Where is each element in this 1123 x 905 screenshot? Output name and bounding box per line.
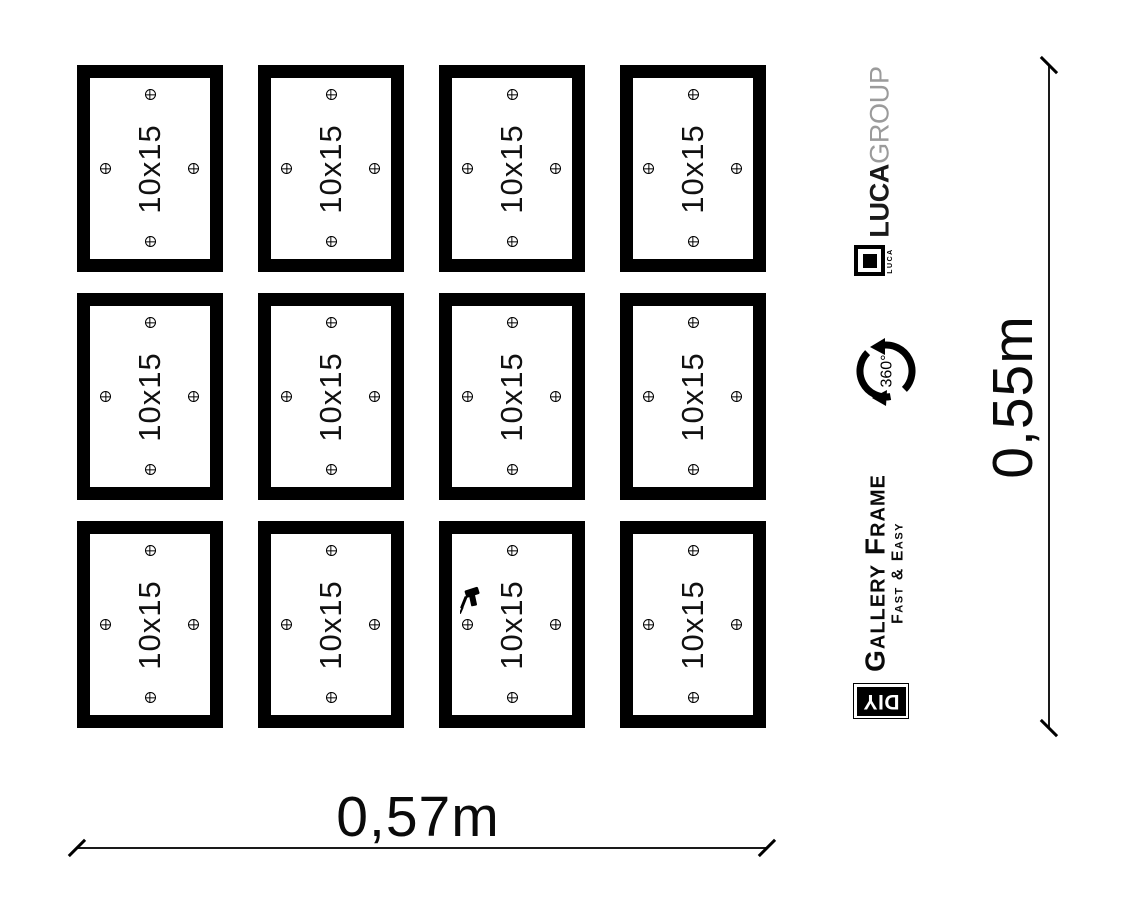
height-dimension-label: 0,55m <box>980 315 1046 478</box>
crosshair-middle-right-icon <box>550 619 561 630</box>
crosshair-middle-right-icon <box>188 163 199 174</box>
crosshair-top-center-icon <box>145 317 156 328</box>
crosshair-top-center-icon <box>145 545 156 556</box>
frame-size-label: 10x15 <box>494 124 530 213</box>
frame-size-label: 10x15 <box>132 124 168 213</box>
frame-size-label: 10x15 <box>132 352 168 441</box>
crosshair-bottom-center-icon <box>145 236 156 247</box>
photo-frame: 10x15 <box>77 521 223 728</box>
width-dimension-line <box>77 847 767 849</box>
crosshair-middle-left-icon <box>281 391 292 402</box>
crosshair-middle-right-icon <box>550 163 561 174</box>
photo-frame: 10x15 <box>258 293 404 500</box>
crosshair-middle-left-icon <box>281 619 292 630</box>
photo-frame: 10x15 <box>439 521 585 728</box>
photo-frame: 10x15 <box>77 293 223 500</box>
crosshair-bottom-center-icon <box>688 464 699 475</box>
crosshair-bottom-center-icon <box>326 464 337 475</box>
crosshair-middle-right-icon <box>188 619 199 630</box>
drill-icon <box>460 586 482 616</box>
crosshair-middle-left-icon <box>100 619 111 630</box>
diy-label: DIY <box>863 691 900 712</box>
crosshair-top-center-icon <box>326 545 337 556</box>
crosshair-bottom-center-icon <box>688 692 699 703</box>
photo-frame: 10x15 <box>77 65 223 272</box>
crosshair-middle-left-icon <box>462 163 473 174</box>
crosshair-middle-right-icon <box>369 619 380 630</box>
frame-size-label: 10x15 <box>313 124 349 213</box>
crosshair-middle-left-icon <box>100 163 111 174</box>
photo-frame: 10x15 <box>620 65 766 272</box>
crosshair-bottom-center-icon <box>145 464 156 475</box>
crosshair-middle-left-icon <box>643 163 654 174</box>
luca-logo: LUCA <box>854 244 894 278</box>
crosshair-middle-left-icon <box>281 163 292 174</box>
crosshair-top-center-icon <box>145 89 156 100</box>
crosshair-top-center-icon <box>688 545 699 556</box>
crosshair-top-center-icon <box>688 317 699 328</box>
product-tagline: Fast & Easy <box>890 474 908 672</box>
frame-size-label: 10x15 <box>313 580 349 669</box>
crosshair-top-center-icon <box>507 317 518 328</box>
photo-frame: 10x15 <box>439 293 585 500</box>
frame-size-label: 10x15 <box>313 352 349 441</box>
rotation-360-label: 360° <box>879 354 896 387</box>
crosshair-middle-left-icon <box>100 391 111 402</box>
height-dimension-line <box>1048 65 1050 728</box>
group-wordmark-light: GROUP <box>865 66 895 164</box>
frame-size-label: 10x15 <box>675 124 711 213</box>
crosshair-middle-right-icon <box>731 391 742 402</box>
crosshair-bottom-center-icon <box>326 236 337 247</box>
crosshair-middle-right-icon <box>369 163 380 174</box>
crosshair-middle-right-icon <box>188 391 199 402</box>
crosshair-top-center-icon <box>507 89 518 100</box>
crosshair-middle-right-icon <box>369 391 380 402</box>
luca-group-wordmark: LUCAGROUP <box>865 66 896 237</box>
crosshair-middle-left-icon <box>643 619 654 630</box>
product-wordmark: Gallery Frame Fast & Easy <box>860 474 907 672</box>
crosshair-bottom-center-icon <box>507 236 518 247</box>
luca-logo-caption: LUCA <box>887 244 894 278</box>
frame-size-label: 10x15 <box>494 352 530 441</box>
frame-size-label: 10x15 <box>494 580 530 669</box>
crosshair-middle-right-icon <box>731 163 742 174</box>
product-name: Gallery Frame <box>860 474 889 672</box>
crosshair-bottom-center-icon <box>507 692 518 703</box>
frames-grid: 10x15 10x15 10x15 10x15 10x15 <box>77 65 766 728</box>
photo-frame: 10x15 <box>258 521 404 728</box>
crosshair-bottom-center-icon <box>507 464 518 475</box>
diy-logo: DIY <box>853 683 909 719</box>
frame-size-label: 10x15 <box>675 580 711 669</box>
crosshair-bottom-center-icon <box>326 692 337 703</box>
luca-logo-inner-square-icon <box>863 254 877 268</box>
crosshair-top-center-icon <box>326 89 337 100</box>
photo-frame: 10x15 <box>620 293 766 500</box>
crosshair-middle-left-icon <box>462 391 473 402</box>
crosshair-bottom-center-icon <box>688 236 699 247</box>
crosshair-middle-left-icon <box>462 619 473 630</box>
photo-frame: 10x15 <box>620 521 766 728</box>
crosshair-middle-left-icon <box>643 391 654 402</box>
crosshair-top-center-icon <box>688 89 699 100</box>
rotation-360-icon: 360° <box>850 335 922 407</box>
crosshair-middle-right-icon <box>731 619 742 630</box>
photo-frame: 10x15 <box>439 65 585 272</box>
crosshair-middle-right-icon <box>550 391 561 402</box>
frame-size-label: 10x15 <box>675 352 711 441</box>
photo-frame: 10x15 <box>258 65 404 272</box>
frame-size-label: 10x15 <box>132 580 168 669</box>
crosshair-bottom-center-icon <box>145 692 156 703</box>
luca-logo-square-icon <box>854 246 885 277</box>
gallery-frame-layout-diagram: 10x15 10x15 10x15 10x15 10x15 <box>0 0 1123 905</box>
width-dimension-label: 0,57m <box>336 784 499 850</box>
crosshair-top-center-icon <box>507 545 518 556</box>
luca-wordmark-bold: LUCA <box>865 164 895 238</box>
crosshair-top-center-icon <box>326 317 337 328</box>
